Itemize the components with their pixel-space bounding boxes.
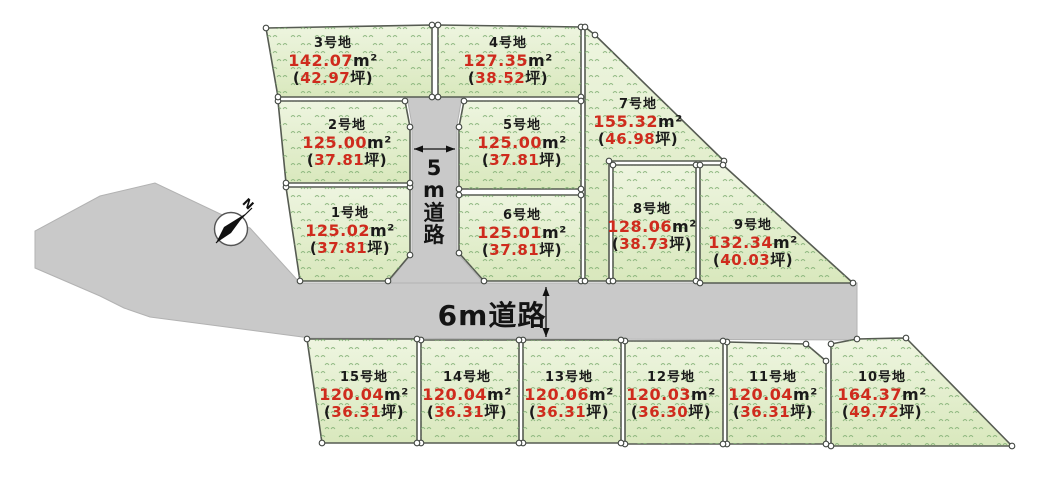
survey-point-marker	[823, 358, 829, 364]
survey-point-marker	[903, 335, 909, 341]
survey-point-marker	[319, 440, 325, 446]
lot-area-sqm: 128.06m²	[607, 218, 696, 236]
road-6m-label: 6m道路	[432, 294, 552, 334]
lot-label: 2号地125.00m²(37.81坪)	[302, 119, 391, 169]
survey-point-marker	[578, 192, 584, 198]
lot-number: 3号地	[288, 37, 377, 52]
survey-point-marker	[854, 336, 860, 342]
survey-point-marker	[828, 341, 834, 347]
lot-area-sqm: 125.00m²	[477, 134, 566, 152]
lot-label: 7号地155.32m²(46.98坪)	[593, 98, 682, 148]
lot-area-tsubo: (37.81坪)	[302, 152, 391, 169]
survey-point-marker	[429, 94, 435, 100]
lot-label: 15号地120.04m²(36.31坪)	[319, 371, 408, 421]
survey-point-marker	[435, 22, 441, 28]
lot-label: 12号地120.03m²(36.30坪)	[626, 371, 715, 421]
lot-area-tsubo: (36.31坪)	[524, 404, 613, 421]
survey-point-marker	[578, 186, 584, 192]
lot-label: 5号地125.00m²(37.81坪)	[477, 119, 566, 169]
lot-number: 2号地	[302, 119, 391, 134]
lot-label: 10号地164.37m²(49.72坪)	[837, 371, 926, 421]
survey-point-marker	[275, 94, 281, 100]
survey-point-marker	[456, 250, 462, 256]
lot-area-tsubo: (36.31坪)	[728, 404, 817, 421]
lot-number: 9号地	[708, 219, 797, 234]
survey-point-marker	[456, 192, 462, 198]
survey-point-marker	[618, 337, 624, 343]
survey-point-marker	[578, 98, 584, 104]
survey-point-marker	[582, 24, 588, 30]
lot-area-sqm: 164.37m²	[837, 386, 926, 404]
survey-point-marker	[850, 280, 856, 286]
road-5m-label-char: m	[423, 179, 445, 201]
survey-point-marker	[297, 278, 303, 284]
survey-point-marker	[263, 25, 269, 31]
lot-number: 11号地	[728, 371, 817, 386]
lot-area-sqm: 125.02m²	[305, 222, 394, 240]
survey-point-marker	[429, 22, 435, 28]
survey-point-marker	[304, 336, 310, 342]
lot-number: 12号地	[626, 371, 715, 386]
lot-label: 11号地120.04m²(36.31坪)	[728, 371, 817, 421]
survey-point-marker	[516, 440, 522, 446]
lot-label: 13号地120.06m²(36.31坪)	[524, 371, 613, 421]
survey-point-marker	[407, 124, 413, 130]
survey-point-marker	[456, 124, 462, 130]
lot-label: 3号地142.07m²(42.97坪)	[288, 37, 377, 87]
lot-area-tsubo: (37.81坪)	[305, 240, 394, 257]
survey-point-marker	[720, 338, 726, 344]
road-5m-label-char: 道	[424, 202, 445, 224]
survey-point-marker	[720, 441, 726, 447]
lot-number: 5号地	[477, 119, 566, 134]
survey-point-marker	[697, 162, 703, 168]
lot-number: 14号地	[422, 371, 511, 386]
lot-area-sqm: 120.03m²	[626, 386, 715, 404]
lot-number: 15号地	[319, 371, 408, 386]
lot-area-tsubo: (36.31坪)	[422, 404, 511, 421]
survey-point-marker	[402, 98, 408, 104]
lot-area-sqm: 132.34m²	[708, 234, 797, 252]
lot-area-sqm: 125.01m²	[477, 224, 566, 242]
lot-number: 6号地	[477, 209, 566, 224]
road-5m-label-char: 路	[424, 224, 445, 246]
lot-number: 13号地	[524, 371, 613, 386]
lot-area-sqm: 120.04m²	[422, 386, 511, 404]
survey-point-marker	[592, 32, 598, 38]
lot-area-tsubo: (37.81坪)	[477, 242, 566, 259]
lot-number: 4号地	[463, 37, 552, 52]
survey-point-marker	[461, 98, 467, 104]
lot-label: 9号地132.34m²(40.03坪)	[708, 219, 797, 269]
survey-point-marker	[407, 252, 413, 258]
subdivision-map: 1号地125.02m²(37.81坪)2号地125.00m²(37.81坪)3号…	[0, 0, 1044, 480]
survey-point-marker	[414, 336, 420, 342]
lot-area-sqm: 142.07m²	[288, 52, 377, 70]
survey-point-marker	[385, 278, 391, 284]
survey-point-marker	[407, 180, 413, 186]
lot-area-tsubo: (36.30坪)	[626, 404, 715, 421]
survey-point-marker	[582, 278, 588, 284]
lot-area-sqm: 120.04m²	[728, 386, 817, 404]
lot-area-tsubo: (46.98坪)	[593, 131, 682, 148]
survey-point-marker	[435, 94, 441, 100]
lot-label: 1号地125.02m²(37.81坪)	[305, 207, 394, 257]
lot-area-tsubo: (36.31坪)	[319, 404, 408, 421]
survey-point-marker	[823, 441, 829, 447]
survey-point-marker	[414, 440, 420, 446]
survey-point-marker	[610, 278, 616, 284]
lot-area-tsubo: (38.52坪)	[463, 70, 552, 87]
survey-point-marker	[283, 180, 289, 186]
lot-number: 8号地	[607, 203, 696, 218]
lot-label: 8号地128.06m²(38.73坪)	[607, 203, 696, 253]
lot-area-tsubo: (37.81坪)	[477, 152, 566, 169]
survey-point-marker	[516, 337, 522, 343]
survey-point-marker	[456, 186, 462, 192]
survey-point-marker	[618, 440, 624, 446]
lot-area-tsubo: (40.03坪)	[708, 252, 797, 269]
lot-number: 1号地	[305, 207, 394, 222]
lot-area-tsubo: (38.73坪)	[607, 236, 696, 253]
survey-point-marker	[481, 278, 487, 284]
lot-number: 7号地	[593, 98, 682, 113]
lot-area-tsubo: (42.97坪)	[288, 70, 377, 87]
lot-area-sqm: 125.00m²	[302, 134, 391, 152]
survey-point-marker	[1009, 443, 1015, 449]
survey-point-marker	[697, 280, 703, 286]
lot-label: 4号地127.35m²(38.52坪)	[463, 37, 552, 87]
lot-label: 6号地125.01m²(37.81坪)	[477, 209, 566, 259]
lot-area-sqm: 155.32m²	[593, 113, 682, 131]
survey-point-marker	[720, 162, 726, 168]
lot-area-sqm: 120.06m²	[524, 386, 613, 404]
lot-area-sqm: 127.35m²	[463, 52, 552, 70]
road-5m-label: 5m道路	[419, 157, 449, 246]
survey-point-marker	[803, 341, 809, 347]
lot-area-sqm: 120.04m²	[319, 386, 408, 404]
survey-point-marker	[610, 162, 616, 168]
lot-label: 14号地120.04m²(36.31坪)	[422, 371, 511, 421]
road-5m-label-char: 5	[427, 157, 442, 179]
lot-area-tsubo: (49.72坪)	[837, 404, 926, 421]
lot-number: 10号地	[837, 371, 926, 386]
